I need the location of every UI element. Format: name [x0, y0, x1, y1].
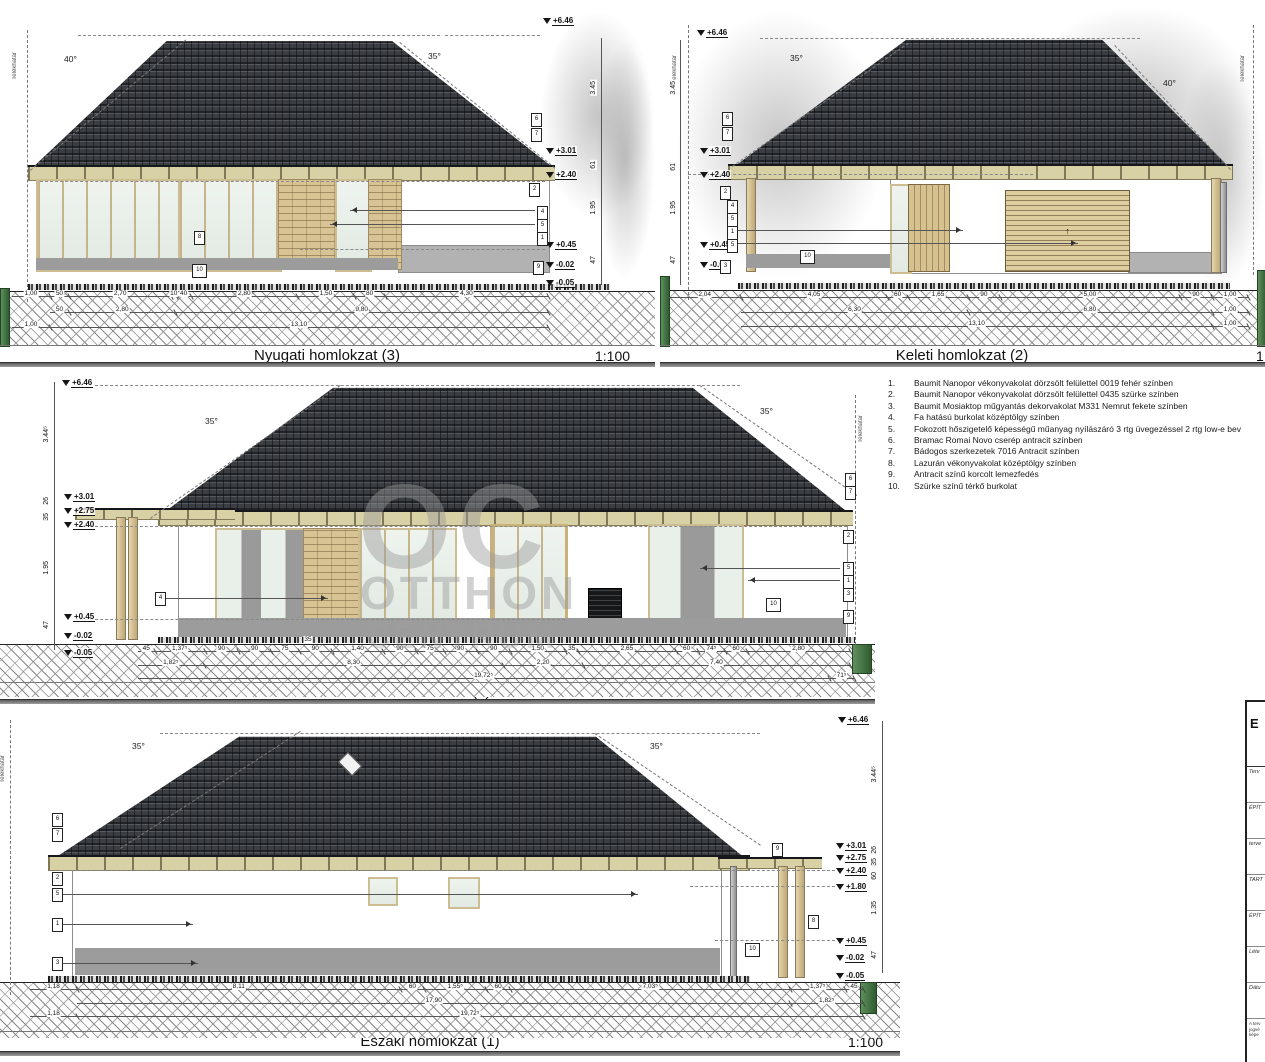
legend-item: 9. Antracit színű korcolt lemezfedés	[888, 469, 1265, 480]
dimension-segment: 50	[50, 308, 69, 316]
dimension-segment: 2,70	[69, 292, 172, 300]
west-elevation-panel: Telekhatár 40° 35° +6.46 +3.01 +2.40 +0.…	[0, 0, 655, 367]
dimension-segment: 2,65	[578, 647, 675, 655]
material-legend: 1. Baumit Nanopor vékonyvakolat dörzsölt…	[888, 378, 1265, 492]
window-group	[215, 528, 307, 624]
ridge-level-dash	[760, 38, 1140, 39]
title-underline	[0, 362, 655, 367]
callout-4: 4	[537, 206, 548, 220]
dimension-segment: 4,05	[741, 293, 887, 301]
dimension-segment: 1,65	[908, 293, 967, 301]
leader-line	[700, 568, 840, 569]
callout-9: 9	[533, 261, 544, 275]
dimension-value: 90	[250, 645, 259, 652]
callout-2: 2	[843, 530, 854, 544]
dimension-segment: 90	[238, 647, 271, 655]
dimension-segment: 45	[845, 985, 863, 993]
dimension-value: 13,10	[968, 320, 986, 327]
dimension-value: 1,65	[931, 291, 946, 298]
dimension-segment: 2,80	[747, 647, 850, 655]
title-block-row: TART	[1247, 875, 1265, 911]
dimension-segment: 1,18	[30, 1012, 77, 1020]
legend-item-text: Bramac Romai Novo cserép antracit színbe…	[914, 435, 1083, 446]
dimension-value: 71⁵	[836, 672, 848, 679]
dimension-row-2: 6,306,801,00	[668, 308, 1248, 316]
vertical-dim: 1.95	[670, 200, 677, 216]
legend-item-number: 2.	[888, 389, 914, 400]
vertical-dim: 3.45	[590, 80, 597, 96]
level-marker: +6.46	[838, 715, 869, 725]
level-marker: -0.05	[836, 971, 865, 981]
dimension-value: 45	[142, 645, 151, 652]
dimension-value: 90	[1191, 291, 1200, 298]
downpipe	[730, 866, 737, 978]
level-marker: +3.01	[546, 146, 577, 156]
dimension-value: 40	[179, 290, 188, 297]
legend-item-text: Lazurán vékonyvakolat középtölgy színben	[914, 458, 1076, 469]
dimension-value: 75	[280, 645, 289, 652]
dimension-value: 1,37⁵	[809, 983, 826, 990]
callout-2: 2	[720, 186, 731, 200]
leader-line	[748, 580, 840, 581]
dimension-value: 6,80	[1083, 306, 1098, 313]
dimension-value: 60	[682, 645, 691, 652]
callout-8: 8	[808, 915, 819, 929]
dimension-value: 19,72⁵	[473, 672, 494, 679]
callout-5: 5	[843, 562, 854, 576]
vertical-dim: 26	[871, 845, 878, 855]
vertical-dim: 47	[670, 255, 677, 265]
level-marker: +0.45	[64, 612, 95, 622]
dimension-value: 2,80	[237, 290, 252, 297]
dimension-segment: 2,20	[503, 661, 582, 669]
dimension-value: 2,70	[113, 290, 128, 297]
roof-angle-label: 40°	[64, 54, 77, 64]
level-marker: +1.80	[836, 882, 867, 892]
pergola-post	[128, 517, 138, 640]
ridge-level-dash	[78, 35, 440, 36]
dimension-segment: 1,00	[1212, 322, 1248, 330]
dimension-segment: 74⁵	[698, 647, 725, 655]
wall-thickness-label: 35	[303, 636, 312, 643]
title-block-row: ÉPÍT	[1247, 803, 1265, 839]
leader-line	[330, 224, 535, 225]
watermark-otthon: OTTHON	[360, 566, 578, 620]
tree-silhouette	[595, 40, 655, 280]
dark-grill-unit	[588, 588, 622, 622]
dimension-value: 1,00	[24, 290, 39, 297]
east-elevation-panel: Telekhatár Telekhatár 35° 40° ↑ +6.46 +3…	[660, 0, 1265, 367]
dimension-segment: 4,30	[385, 292, 548, 300]
ridge-level-dash	[95, 385, 740, 386]
dimension-segment: 8,11	[77, 985, 400, 993]
callout-6: 6	[531, 113, 542, 127]
dimension-value: 1,00	[24, 321, 39, 328]
leader-line	[63, 963, 198, 964]
hedge-marker	[0, 288, 10, 347]
callout-7: 7	[722, 127, 733, 141]
dimension-segment: 1,00	[1212, 293, 1248, 301]
dimension-row-3: 1,0013,10	[12, 323, 548, 331]
property-boundary-line	[855, 395, 856, 660]
legend-item: 1. Baumit Nanopor vékonyvakolat dörzsölt…	[888, 378, 1265, 389]
legend-item: 2. Baumit Nanopor vékonyvakolat dörzsölt…	[888, 389, 1265, 400]
north-elevation-panel: Telekhatár 35° 35° +6.46 +3.01 +2.75 +2.…	[0, 705, 900, 1060]
callout-2: 2	[529, 183, 540, 197]
legend-item: 7. Bádogos szerkezetek 7016 Antracit szí…	[888, 446, 1265, 457]
callout-7: 7	[52, 828, 63, 842]
plinth-strip	[75, 948, 720, 975]
garage-arrow-icon: ↑	[1065, 226, 1070, 236]
legend-item-number: 4.	[888, 412, 914, 423]
panel-divider	[0, 345, 655, 346]
callout-7: 7	[531, 128, 542, 142]
dimension-segment: 90	[299, 647, 332, 655]
dimension-value: 1,50	[319, 290, 334, 297]
callout-4: 4	[727, 200, 738, 214]
dimension-segment: 1,50	[297, 292, 354, 300]
dimension-value: 1,55⁵	[447, 983, 464, 990]
dimension-value: 19,72⁵	[460, 1010, 481, 1017]
dimension-segment: 1,82⁵	[790, 999, 863, 1007]
soil-band	[48, 976, 750, 982]
dimension-value: 35	[567, 645, 576, 652]
callout-1: 1	[843, 575, 854, 589]
dimension-row-1: 1,188,11601,55⁵607,03⁵1,37⁵45	[30, 985, 863, 993]
dimension-value: 2,80	[791, 645, 806, 652]
dimension-value: 5,00	[1083, 291, 1098, 298]
roof-angle-label: 35°	[650, 741, 663, 751]
callout-1: 1	[727, 226, 738, 240]
roof-angle-label: 40°	[1163, 78, 1176, 88]
title-block-fineprint: A terv jogvé képe	[1247, 1019, 1265, 1038]
dimension-segment: 2,80	[69, 308, 175, 316]
dimension-value: 60	[731, 645, 740, 652]
vertical-dim: 47	[871, 950, 878, 960]
vertical-dim: 61	[670, 162, 677, 172]
roof-angle-label: 35°	[790, 53, 803, 63]
dimension-value: 4,30	[459, 290, 474, 297]
dimension-segment: 90	[968, 293, 1000, 301]
dimension-value: 13,10	[290, 321, 308, 328]
level-marker: +2.40	[700, 170, 731, 180]
callout-10: 10	[766, 598, 781, 612]
boundary-label: Telekhatár	[1240, 55, 1246, 83]
dimension-value: 1,00	[1223, 291, 1238, 298]
leader-line	[63, 894, 638, 895]
dimension-segment: 13,10	[741, 322, 1212, 330]
dimension-segment: 6,80	[968, 308, 1212, 316]
property-boundary-line	[1253, 25, 1254, 275]
level-240-dash	[688, 174, 1033, 175]
leader-line	[163, 598, 328, 599]
level-045-dash	[300, 249, 545, 250]
level-marker: +3.01	[836, 841, 867, 851]
dimension-segment: 1,00	[12, 292, 50, 300]
dimension-value: 90	[217, 645, 226, 652]
dimension-segment: 60	[725, 647, 747, 655]
legend-item-number: 7.	[888, 446, 914, 457]
dimension-segment: 60	[400, 985, 424, 993]
dimension-spacer	[30, 999, 77, 1007]
downpipe	[1220, 182, 1227, 273]
level-marker: -0.02	[546, 260, 575, 270]
plinth-strip	[746, 254, 890, 268]
vertical-dim: 1.95	[590, 200, 597, 216]
eave-fascia	[48, 855, 750, 871]
leader-line	[350, 210, 535, 211]
legend-item-number: 8.	[888, 458, 914, 469]
hedge-marker	[1257, 270, 1265, 347]
level-marker: -0.05	[546, 278, 575, 288]
callout-2: 2	[52, 872, 63, 886]
vertical-dim: 26	[43, 496, 50, 506]
wood-cladding	[303, 528, 360, 622]
callout-6: 6	[845, 473, 856, 487]
vertical-dim-line	[882, 721, 883, 973]
legend-item: 5. Fokozott hőszigetelő képességű műanya…	[888, 424, 1265, 435]
level-marker: +6.46	[697, 28, 728, 38]
title-block-row: Terv	[1247, 767, 1265, 803]
title-underline	[0, 699, 875, 704]
dimension-value: 1,00	[1223, 320, 1238, 327]
panel-divider	[0, 682, 875, 683]
legend-item-text: Baumit Mosiaktop műgyantás dekorvakolat …	[914, 401, 1188, 412]
dimension-value: 17,90	[425, 997, 443, 1004]
property-boundary-line	[10, 720, 11, 995]
dimension-value: 60	[494, 983, 503, 990]
pergola-post	[795, 866, 805, 978]
dimension-value: 45	[849, 983, 858, 990]
dimension-value: 10	[169, 290, 178, 297]
level-marker: -0.02	[64, 631, 93, 641]
dimension-value: 9,80	[354, 306, 369, 313]
level-marker: +2.40	[546, 170, 577, 180]
title-block-row: Dátu	[1247, 983, 1265, 1019]
roof	[50, 733, 750, 859]
soil-band	[738, 283, 1230, 289]
dimension-segment: 17,90	[77, 999, 790, 1007]
dimension-value: 6,30	[847, 306, 862, 313]
dimension-row-3: 19,72⁵71⁵	[138, 674, 854, 682]
title-underline	[0, 1051, 900, 1056]
vertical-dim: 3.44⁵	[43, 425, 50, 444]
plinth	[1128, 252, 1222, 273]
legend-item-number: 5.	[888, 424, 914, 435]
callout-5b: 5	[727, 239, 738, 253]
callout-1: 1	[537, 232, 548, 246]
watermark-centrum: CENTRUM	[366, 618, 557, 657]
small-window	[368, 877, 398, 906]
dimension-segment: 8,30	[204, 661, 504, 669]
dimension-value: 8,11	[232, 983, 246, 990]
dimension-value: 80	[365, 290, 374, 297]
dimension-segment: 90	[205, 647, 238, 655]
callout-7: 7	[845, 486, 856, 500]
dimension-segment: 45	[138, 647, 155, 655]
panel-divider	[660, 345, 1265, 346]
dimension-value: 1,18	[46, 1010, 61, 1017]
level-marker: -0.02	[836, 953, 865, 963]
dimension-value: 60	[408, 983, 417, 990]
dimension-segment: 1,55⁵	[424, 985, 486, 993]
dimension-segment: 1,82⁵	[138, 661, 204, 669]
vertical-dim-line	[601, 38, 602, 285]
vertical-dim: 35	[871, 857, 878, 867]
legend-item: 10. Szürke színű térkő burkolat	[888, 481, 1265, 492]
dimension-segment: 80	[354, 292, 384, 300]
level-marker: +3.01	[700, 146, 731, 156]
dimension-row-1: 2,044,05601,65905,00901,00	[668, 293, 1248, 301]
level-240-dash	[40, 181, 545, 182]
leader-line	[738, 230, 963, 231]
boundary-label: Telekhatár	[858, 415, 864, 443]
vertical-dim: 60	[871, 871, 878, 881]
legend-item: 3. Baumit Mosiaktop műgyantás dekorvakol…	[888, 401, 1265, 412]
vertical-dim: 1.35	[871, 900, 878, 916]
vertical-dim-line	[680, 40, 681, 285]
level-240-dash	[60, 870, 835, 871]
level-marker: +6.46	[543, 16, 574, 26]
roof-angle-label: 35°	[428, 51, 441, 61]
callout-1: 1	[52, 918, 63, 932]
legend-item-text: Fokozott hőszigetelő képességű műanyag n…	[914, 424, 1241, 435]
dimension-value: 1,00	[1223, 306, 1238, 313]
legend-item-number: 3.	[888, 401, 914, 412]
vertical-dim-line	[54, 382, 55, 650]
small-window	[448, 877, 480, 909]
dimension-value: 74⁵	[705, 645, 717, 652]
dimension-row-3: 1,1819,72⁵	[30, 1012, 863, 1020]
level-marker: +0.45	[836, 936, 867, 946]
dimension-segment: 1,37⁵	[790, 985, 845, 993]
pergola-post	[778, 866, 788, 978]
title-block-header: E	[1247, 702, 1265, 767]
ridge-level-dash	[445, 35, 540, 36]
legend-item-text: Baumit Nanopor vékonyvakolat dörzsölt fe…	[914, 389, 1179, 400]
callout-9: 9	[843, 610, 854, 624]
dimension-value: 8,30	[346, 659, 361, 666]
callout-6: 6	[722, 112, 733, 126]
legend-item-number: 6.	[888, 435, 914, 446]
dimension-segment: 40	[176, 292, 191, 300]
dimension-segment: 7,03⁵	[510, 985, 790, 993]
drawing-sheet: { "watermark": {"top": "OC", "mid": "OTT…	[0, 0, 1265, 1060]
dimension-segment: 1,18	[30, 985, 77, 993]
dimension-spacer	[668, 322, 741, 330]
dimension-value: 2,80	[115, 306, 130, 313]
eave-fascia	[728, 164, 1233, 180]
legend-item-number: 9.	[888, 469, 914, 480]
level-marker: +2.40	[64, 520, 95, 530]
level-marker: -0.05	[64, 648, 93, 658]
dimension-value: 90	[979, 291, 988, 298]
legend-item-text: Baumit Nanopor vékonyvakolat dörzsölt fe…	[914, 378, 1173, 389]
level-marker: +0.45	[546, 240, 577, 250]
dimension-row-3: 13,101,00	[668, 322, 1248, 330]
title-block-row: terve	[1247, 839, 1265, 875]
south-elevation-panel: 35° 35° Telekhatár +6.46 +3.01 +2.75 +2.…	[0, 370, 875, 705]
callout-3: 3	[720, 260, 731, 274]
legend-item-number: 1.	[888, 378, 914, 389]
dimension-spacer	[12, 308, 50, 316]
legend-item-text: Fa hatású burkolat középtölgy színben	[914, 412, 1060, 423]
dimension-segment: 71⁵	[829, 674, 854, 682]
ridge-level-dash	[160, 733, 760, 734]
callout-3: 3	[843, 588, 854, 602]
level-marker: +2.40	[836, 866, 867, 876]
window-group	[648, 524, 744, 626]
callout-5: 5	[537, 219, 548, 233]
dimension-row-2: 502,809,80	[12, 308, 548, 316]
legend-item-text: Antracit színű korcolt lemezfedés	[914, 469, 1039, 480]
vertical-dim: 47	[43, 620, 50, 630]
dimension-segment: 13,10	[50, 323, 548, 331]
vertical-dim: 3.45	[670, 80, 677, 96]
callout-10: 10	[192, 264, 207, 278]
callout-3: 3	[52, 957, 63, 971]
pergola-post	[116, 517, 126, 640]
level-marker: +3.01	[64, 492, 95, 502]
dimension-segment: 6,30	[741, 308, 967, 316]
dimension-segment: 19,72⁵	[77, 1012, 863, 1020]
legend-item: 8. Lazurán vékonyvakolat középtölgy szín…	[888, 458, 1265, 469]
dimension-value: 50	[55, 306, 64, 313]
title-block-rows: TervÉPÍTterveTARTÉPÍTLéteDátu	[1247, 767, 1265, 1019]
legend-item: 4. Fa hatású burkolat középtölgy színben	[888, 412, 1265, 423]
leader-line	[63, 924, 193, 925]
garage-door: ↑	[1005, 190, 1130, 272]
boundary-label: Telekhatár	[0, 755, 6, 783]
vertical-dim: 1.95	[43, 560, 50, 576]
dimension-value: 1,82⁵	[818, 997, 835, 1004]
level-180-dash	[690, 886, 835, 887]
level-marker: +2.75	[836, 853, 867, 863]
roof-angle-label: 35°	[760, 406, 773, 416]
dimension-segment: 19,72⁵	[138, 674, 829, 682]
dimension-segment: 90	[1180, 293, 1212, 301]
vertical-dim: 61	[590, 160, 597, 170]
dimension-value: 1,40	[350, 645, 365, 652]
roof-angle-label: 35°	[205, 416, 218, 426]
callout-8: 8	[194, 231, 205, 245]
wood-entry-door	[908, 184, 950, 272]
callout-10: 10	[745, 943, 760, 957]
property-boundary-line	[27, 30, 28, 302]
dimension-value: 90	[311, 645, 320, 652]
dimension-segment: 1,00	[1212, 308, 1248, 316]
callout-5: 5	[52, 888, 63, 902]
callout-6: 6	[52, 813, 63, 827]
dimension-segment: 60	[887, 293, 909, 301]
dimension-value: 1,18	[46, 983, 61, 990]
vertical-dim: 3.44⁵	[871, 765, 878, 784]
dimension-segment: 9,80	[175, 308, 548, 316]
panel-divider	[0, 1031, 900, 1032]
dimension-row-2: 1,82⁵8,302,207,40	[138, 661, 850, 669]
dimension-value: 50	[55, 290, 64, 297]
dimension-value: 2,20	[536, 659, 551, 666]
dimension-value: 2,65	[620, 645, 635, 652]
callout-10: 10	[800, 250, 815, 264]
dimension-segment: 5,00	[1000, 293, 1180, 301]
dimension-row-2: 17,901,82⁵	[30, 999, 863, 1007]
title-block: E TervÉPÍTterveTARTÉPÍTLéteDátu A terv j…	[1245, 700, 1265, 1062]
callout-5: 5	[727, 213, 738, 227]
callout-9: 9	[772, 843, 783, 857]
plinth-strip	[36, 258, 398, 270]
dimension-segment: 2,80	[191, 292, 297, 300]
